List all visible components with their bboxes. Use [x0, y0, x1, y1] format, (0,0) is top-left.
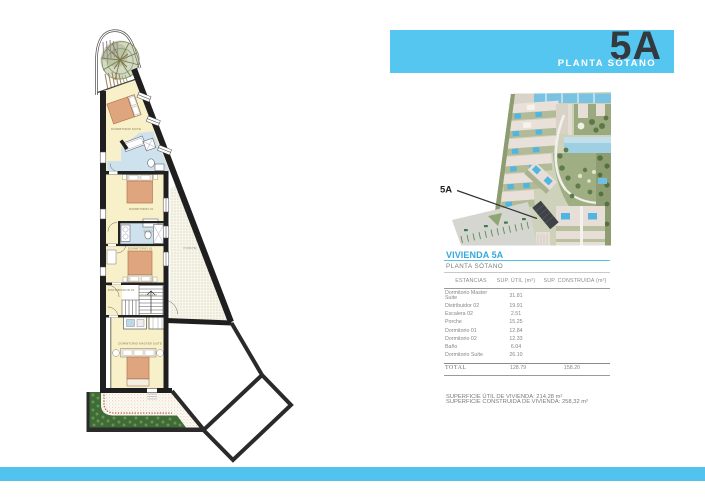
- svg-text:PORCHE: PORCHE: [183, 246, 196, 250]
- svg-text:DORMITORIO 01: DORMITORIO 01: [129, 207, 154, 211]
- svg-text:DISTRIBUIDOR 02: DISTRIBUIDOR 02: [108, 288, 135, 292]
- svg-text:ESCALERA 02: ESCALERA 02: [139, 293, 157, 297]
- svg-text:5A: 5A: [440, 185, 452, 196]
- svg-text:DORMITORIO MASTER SUITE: DORMITORIO MASTER SUITE: [118, 342, 162, 346]
- svg-text:BAÑO: BAÑO: [144, 229, 153, 234]
- svg-text:DORMITORIO SUITE: DORMITORIO SUITE: [111, 127, 141, 131]
- svg-text:DORMITORIO 02: DORMITORIO 02: [128, 247, 153, 251]
